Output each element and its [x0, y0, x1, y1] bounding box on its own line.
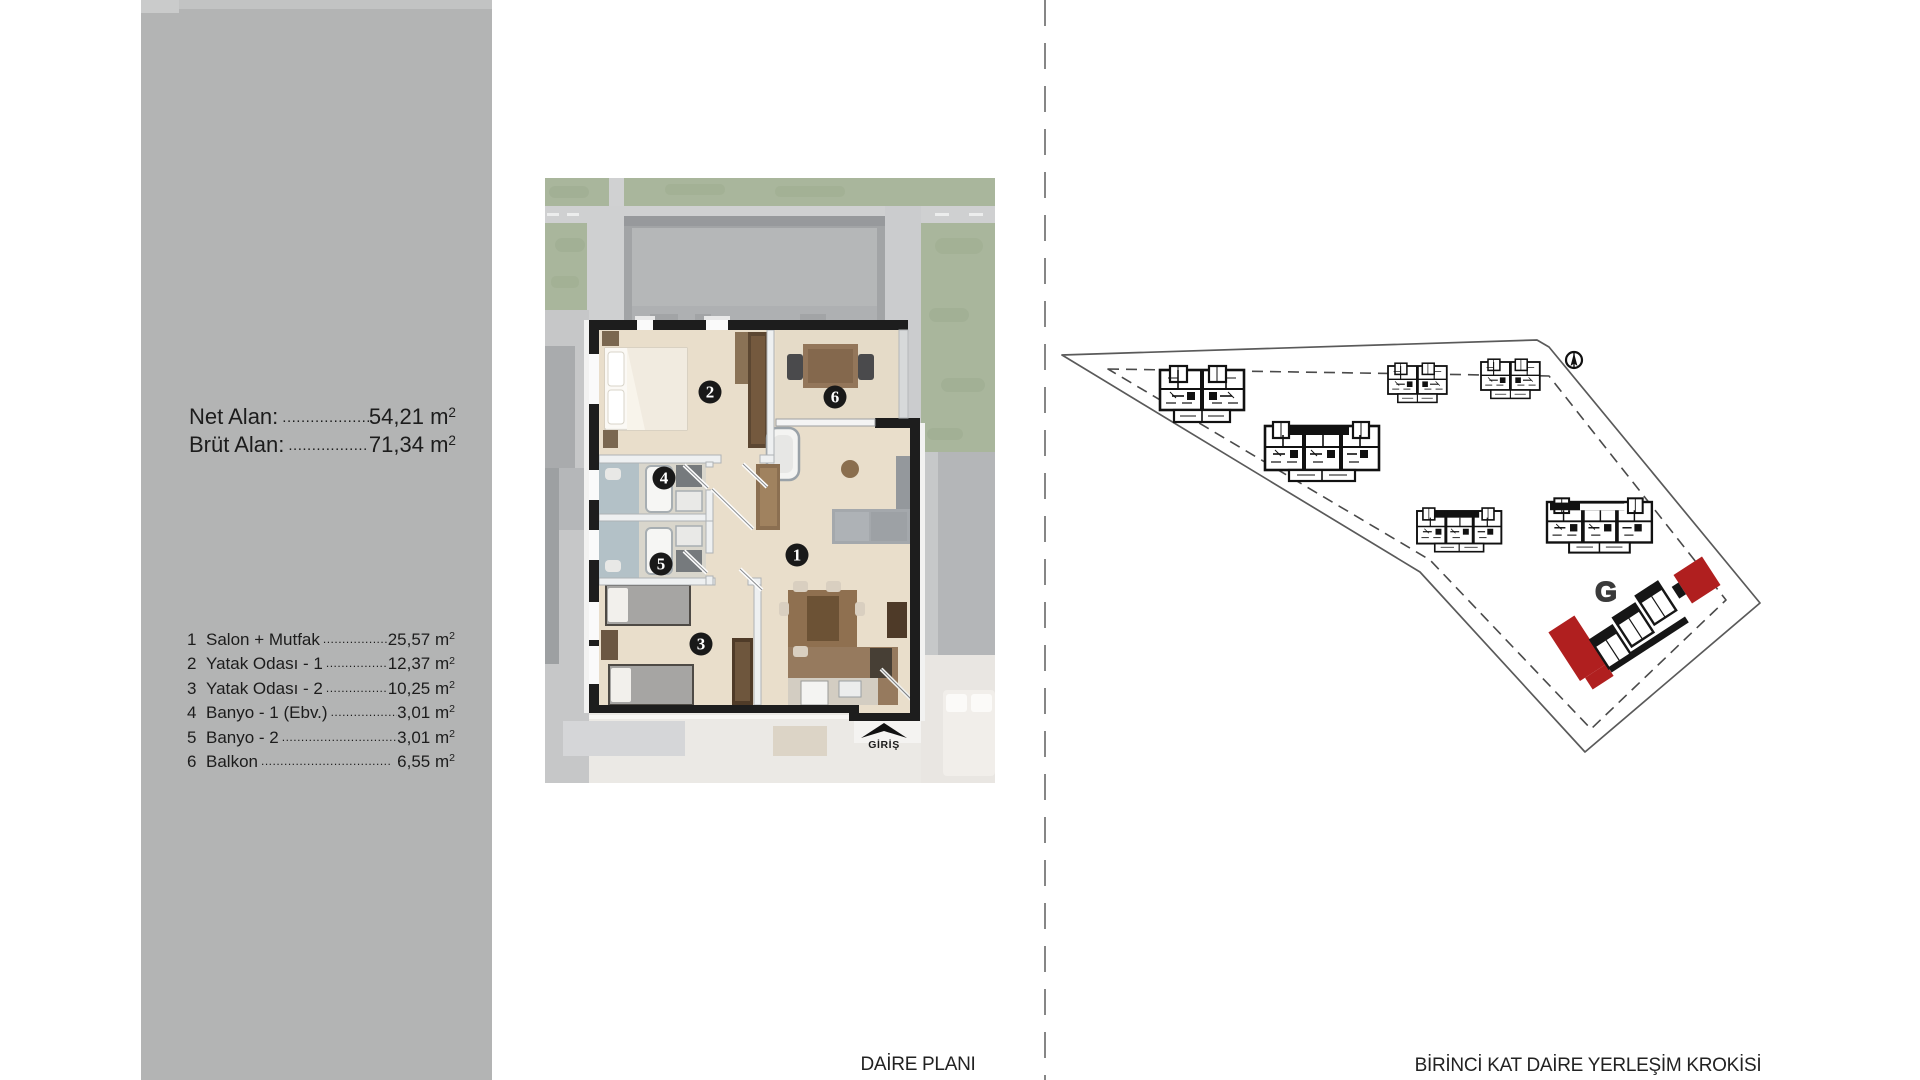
svg-text:GİRİŞ: GİRİŞ [868, 738, 900, 751]
svg-text:G: G [1595, 576, 1617, 607]
svg-text:1: 1 [793, 546, 802, 565]
svg-text:4: 4 [660, 469, 669, 488]
svg-text:3: 3 [697, 635, 706, 654]
svg-text:6: 6 [831, 388, 840, 407]
svg-text:5: 5 [657, 555, 666, 574]
svg-text:2: 2 [706, 383, 715, 402]
